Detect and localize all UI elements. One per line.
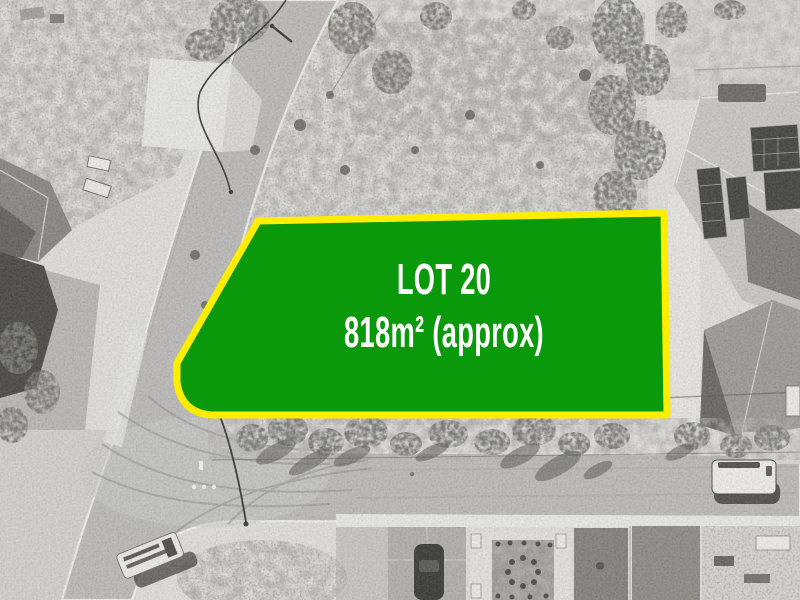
lot-area-label: 818m² (approx) <box>344 307 544 360</box>
lot-labels: LOT 20 818m² (approx) <box>283 254 605 360</box>
lot-number-label: LOT 20 <box>344 254 544 307</box>
listing-image: LOT 20 818m² (approx) <box>0 0 800 600</box>
